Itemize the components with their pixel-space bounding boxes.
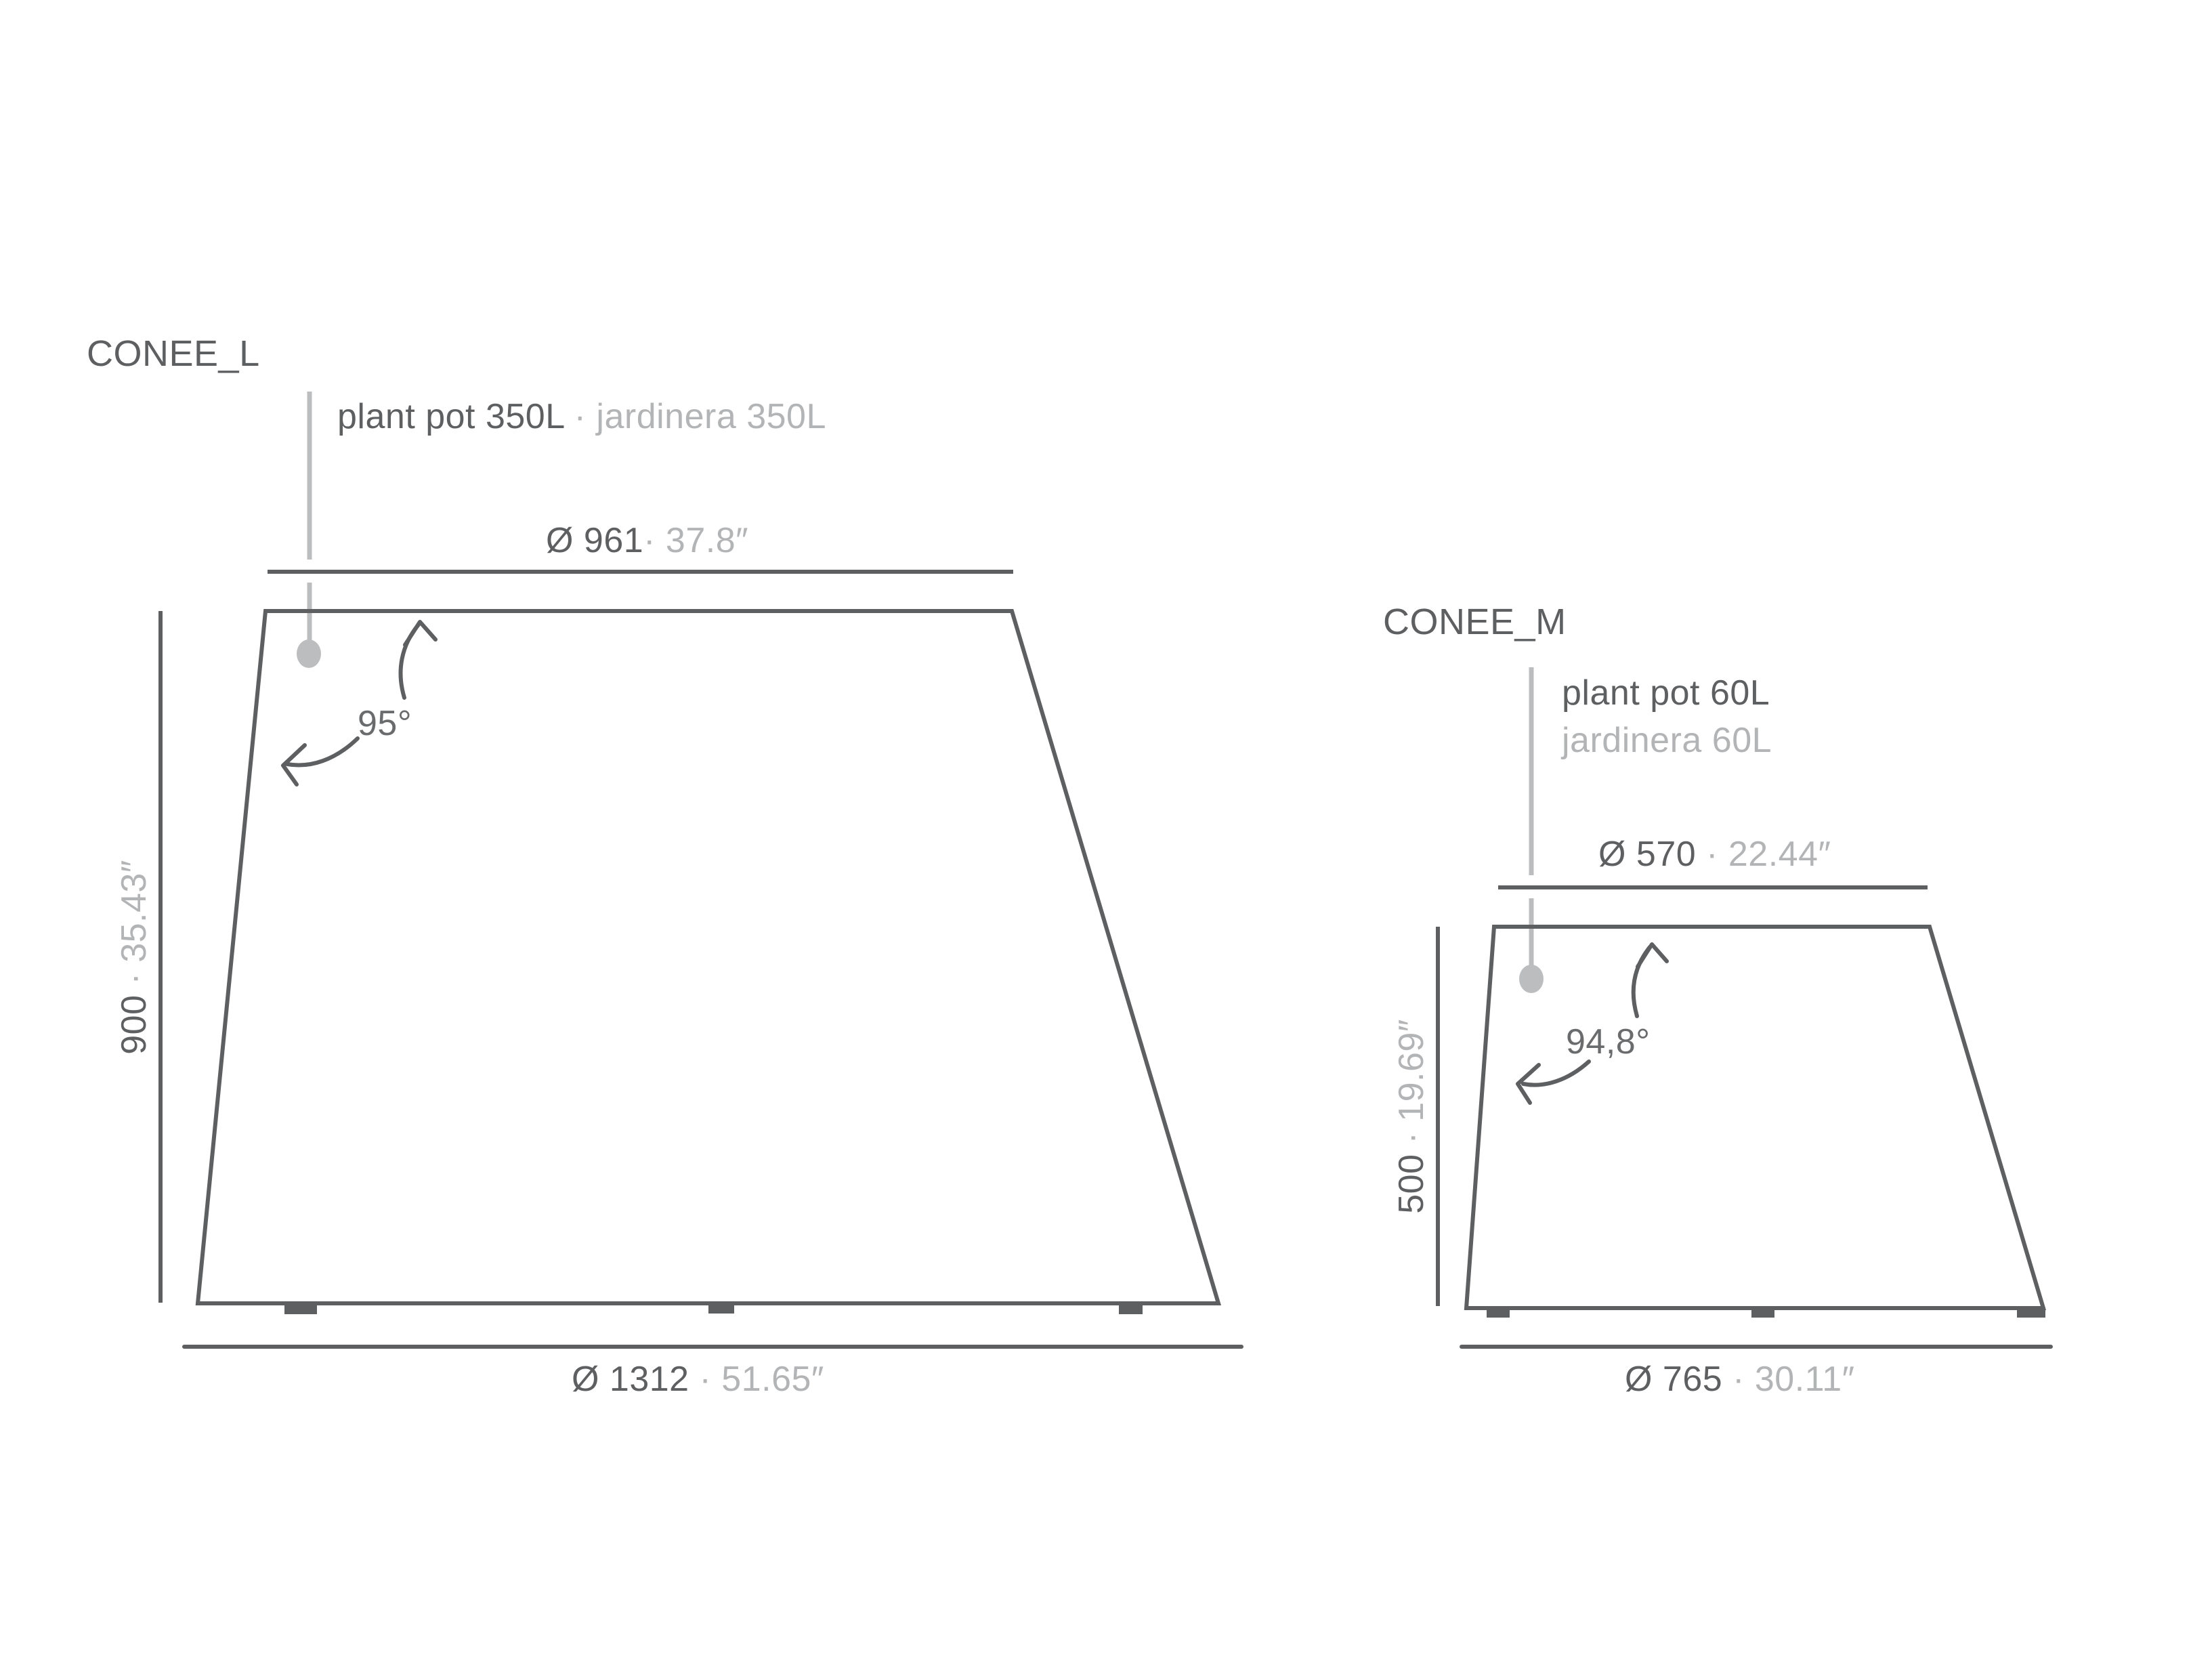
conee-m-height-dimension: 500 · 19.69″ xyxy=(1392,1019,1431,1214)
conee-m-angle-arrow-left xyxy=(1518,1062,1589,1103)
conee-m-height-in: · 19.69″ xyxy=(1392,1019,1431,1154)
conee-l-height-in: · 35.43″ xyxy=(114,860,154,994)
conee-m-pot-outline xyxy=(1466,927,2043,1308)
conee-m-top-diameter-mm: Ø 570 xyxy=(1598,835,1696,874)
conee-l-top-diameter-mm: Ø 961 xyxy=(546,521,643,560)
diagram-page: CONEE_L plant pot 350L · jardinera 350L … xyxy=(0,0,2212,1659)
conee-l-bottom-diameter-mm: Ø 1312 xyxy=(572,1360,689,1399)
conee-m-top-diameter-in: · 22.44″ xyxy=(1696,835,1831,874)
conee-m-foot-left xyxy=(1487,1308,1510,1318)
plant-pot-dimension-diagram: CONEE_L plant pot 350L · jardinera 350L … xyxy=(0,0,2212,1659)
conee-l-foot-left xyxy=(284,1303,317,1314)
conee-l-height-dimension: 900 · 35.43″ xyxy=(114,860,154,1055)
conee-m-arrow-left-curve xyxy=(1523,1062,1589,1085)
conee-m-title: CONEE_M xyxy=(1383,602,1567,642)
conee-l-pot-outline xyxy=(198,611,1218,1303)
conee-m-leader-dot xyxy=(1519,965,1544,993)
conee-m-top-diameter: Ø 570 · 22.44″ xyxy=(1598,835,1831,874)
conee-l-top-diameter: Ø 961· 37.8″ xyxy=(546,521,748,560)
conee-l-foot-right xyxy=(1119,1303,1143,1314)
conee-l-figure: CONEE_L plant pot 350L · jardinera 350L … xyxy=(87,333,1241,1399)
conee-m-figure: CONEE_M plant pot 60L jardinera 60L Ø 57… xyxy=(1383,602,2051,1399)
conee-l-bottom-diameter: Ø 1312 · 51.65″ xyxy=(572,1360,824,1399)
conee-l-angle-label: 95° xyxy=(358,704,412,743)
conee-l-product-label: plant pot 350L · jardinera 350L xyxy=(337,397,826,436)
conee-l-height-mm: 900 xyxy=(114,994,154,1054)
conee-l-angle-arrow-up xyxy=(401,622,435,698)
conee-m-bottom-diameter-mm: Ø 765 xyxy=(1625,1360,1722,1399)
conee-l-angle-arrow-left xyxy=(283,738,358,784)
conee-l-title: CONEE_L xyxy=(87,333,260,374)
conee-m-angle-label: 94,8° xyxy=(1566,1022,1651,1062)
conee-m-angle-arrow-up xyxy=(1634,944,1667,1016)
conee-m-foot-right xyxy=(2017,1308,2045,1318)
conee-m-bottom-diameter: Ø 765 · 30.11″ xyxy=(1625,1360,1855,1399)
conee-m-label-secondary: jardinera 60L xyxy=(1560,721,1772,760)
conee-m-foot-middle xyxy=(1751,1308,1774,1318)
conee-m-bottom-diameter-in: · 30.11″ xyxy=(1722,1360,1854,1399)
conee-m-label-primary: plant pot 60L xyxy=(1562,673,1770,713)
conee-l-label-secondary: · jardinera 350L xyxy=(564,397,826,436)
conee-m-height-mm: 500 xyxy=(1392,1154,1431,1213)
conee-l-label-primary: plant pot 350L xyxy=(337,397,564,436)
conee-l-bottom-diameter-in: · 51.65″ xyxy=(689,1360,824,1399)
conee-l-foot-middle xyxy=(708,1303,734,1314)
conee-l-leader-dot xyxy=(297,639,321,668)
conee-l-top-diameter-in: · 37.8″ xyxy=(643,521,748,560)
